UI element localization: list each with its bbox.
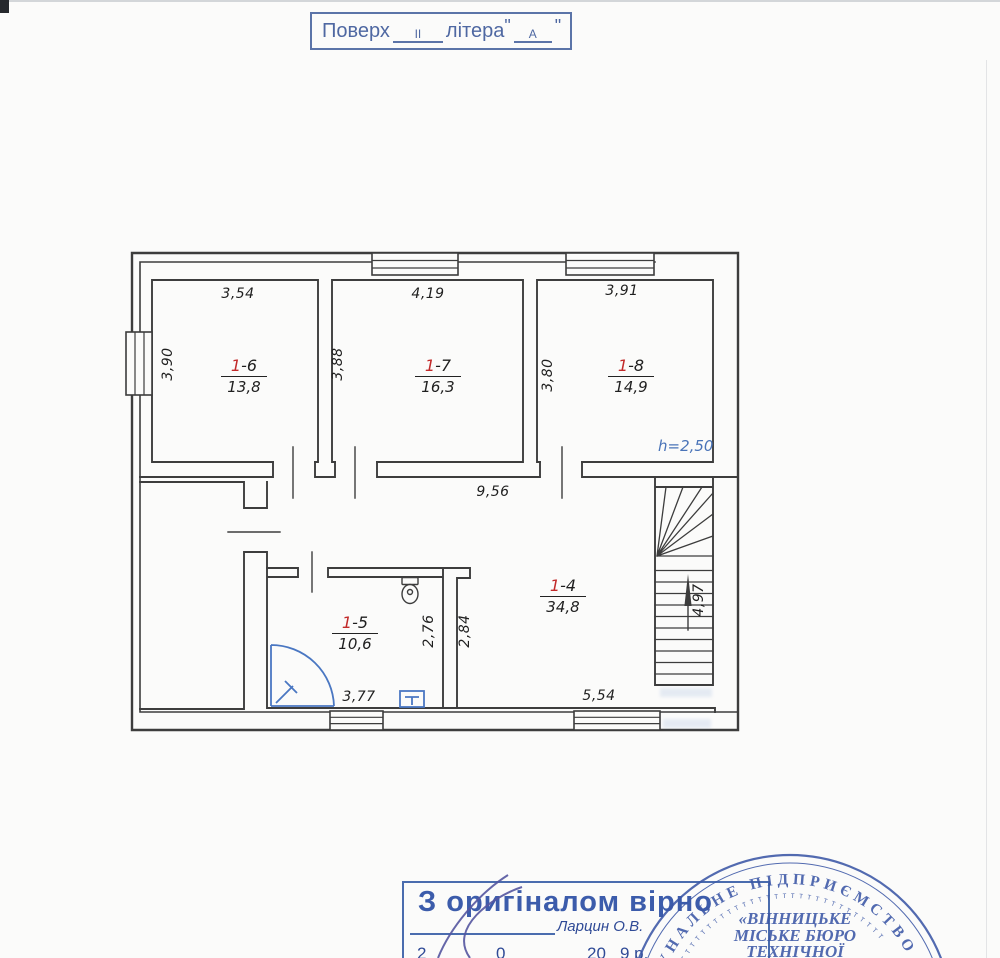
seal-and-signature: КОМУНАЛЬНЕ ПІДПРИЄМСТВО тттттттттттттттт… [0,0,1000,958]
scanned-floor-plan-page: 3,54 4,19 3,91 3,90 3,88 3,80 9,56 5,54 … [0,0,1000,958]
round-seal: КОМУНАЛЬНЕ ПІДПРИЄМСТВО тттттттттттттттт… [628,855,952,958]
seal-line3: ТЕХНІЧНОЇ [746,942,845,958]
signature [438,875,522,958]
